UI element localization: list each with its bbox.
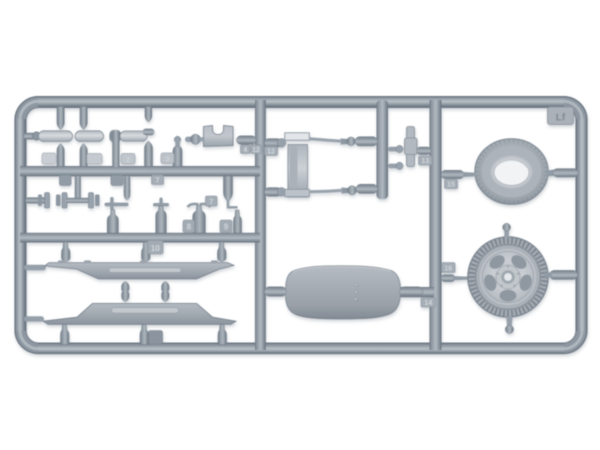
- svg-text:12: 12: [252, 147, 260, 154]
- svg-text:7: 7: [209, 199, 213, 206]
- svg-text:10: 10: [151, 243, 161, 253]
- svg-text:12: 12: [267, 149, 275, 156]
- svg-text:9: 9: [224, 223, 229, 232]
- svg-text:Lf: Lf: [556, 113, 566, 124]
- svg-text:14: 14: [424, 300, 432, 307]
- svg-text:4: 4: [243, 147, 247, 154]
- svg-text:2: 2: [126, 155, 130, 164]
- svg-text:3: 3: [165, 154, 169, 163]
- svg-text:13: 13: [421, 158, 429, 165]
- svg-text:16: 16: [444, 266, 452, 273]
- svg-text:15: 15: [447, 182, 455, 189]
- svg-text:7: 7: [156, 178, 160, 185]
- svg-text:8: 8: [187, 223, 192, 232]
